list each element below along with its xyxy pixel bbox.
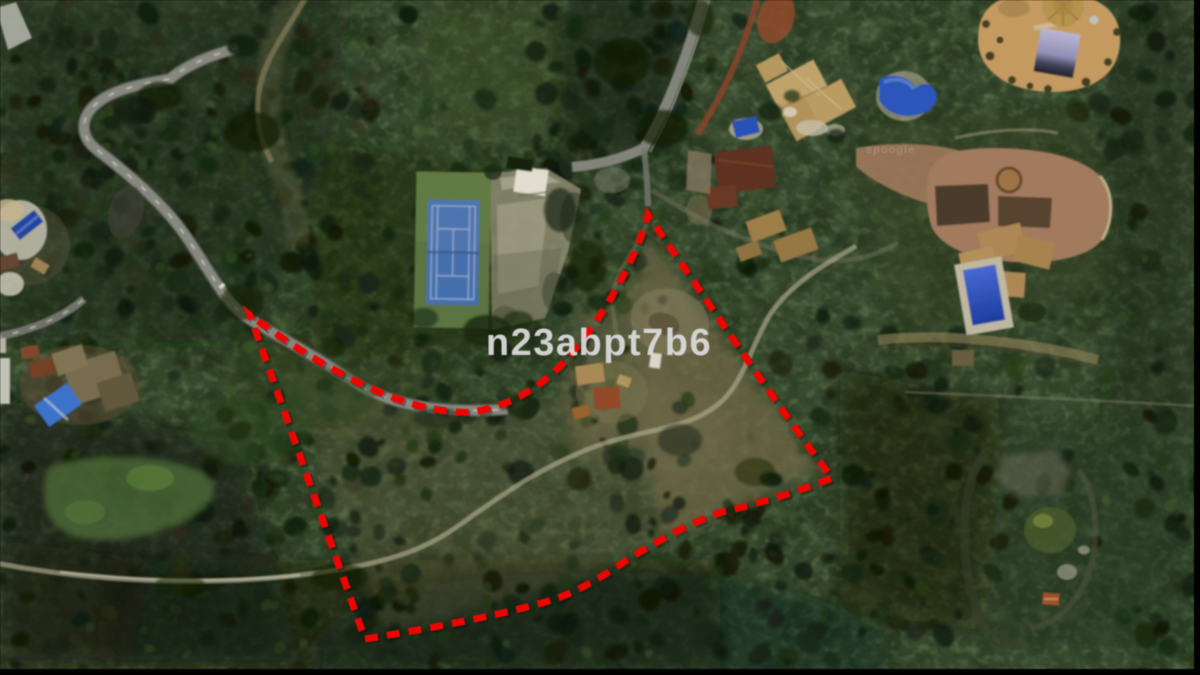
- svg-text:n23abpt7b6: n23abpt7b6: [486, 322, 712, 364]
- svg-text:spoogle: spoogle: [866, 144, 915, 156]
